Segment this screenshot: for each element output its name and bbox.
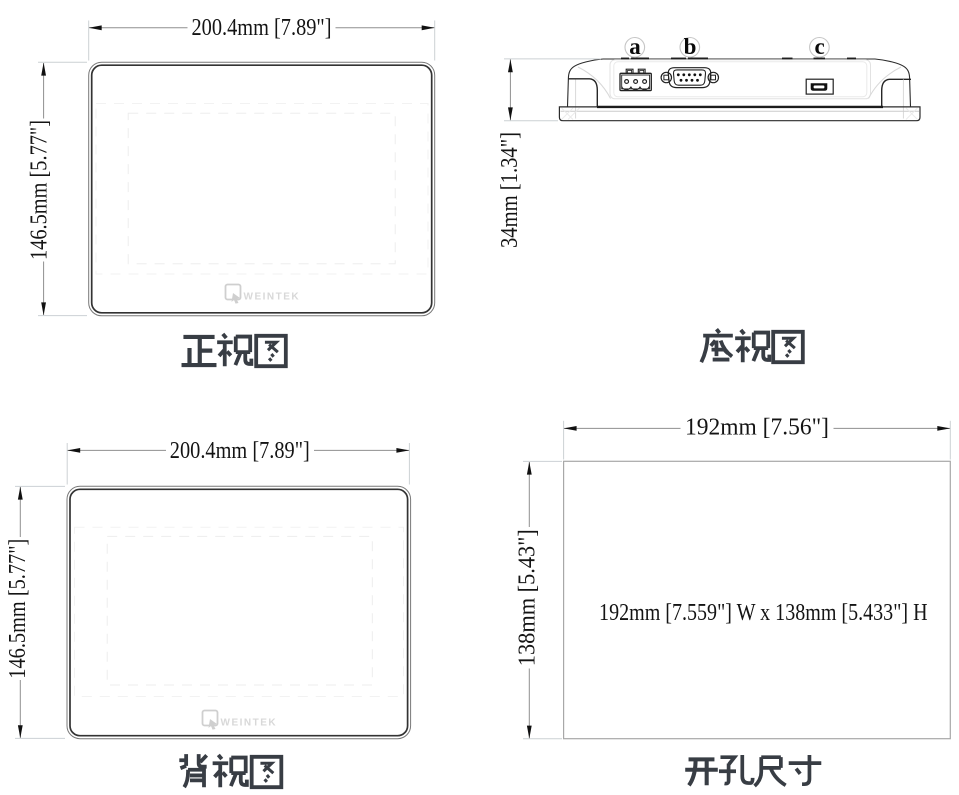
svg-text:192mm [7.559"] W x 138mm [5.43: 192mm [7.559"] W x 138mm [5.433"] H	[599, 600, 928, 626]
svg-text:WEINTEK: WEINTEK	[244, 292, 301, 303]
svg-text:a: a	[629, 34, 641, 59]
svg-text:b: b	[684, 34, 697, 59]
svg-text:34mm [1.34"]: 34mm [1.34"]	[497, 132, 523, 248]
svg-text:146.5mm [5.77"]: 146.5mm [5.77"]	[5, 539, 31, 679]
svg-text:200.4mm [7.89"]: 200.4mm [7.89"]	[170, 438, 310, 464]
svg-text:c: c	[814, 34, 824, 59]
svg-text:WEINTEK: WEINTEK	[221, 718, 278, 729]
svg-text:200.4mm [7.89"]: 200.4mm [7.89"]	[192, 15, 332, 41]
svg-text:138mm [5.43"]: 138mm [5.43"]	[515, 529, 541, 666]
svg-text:192mm [7.56"]: 192mm [7.56"]	[685, 414, 829, 440]
svg-text:146.5mm [5.77"]: 146.5mm [5.77"]	[26, 120, 52, 260]
